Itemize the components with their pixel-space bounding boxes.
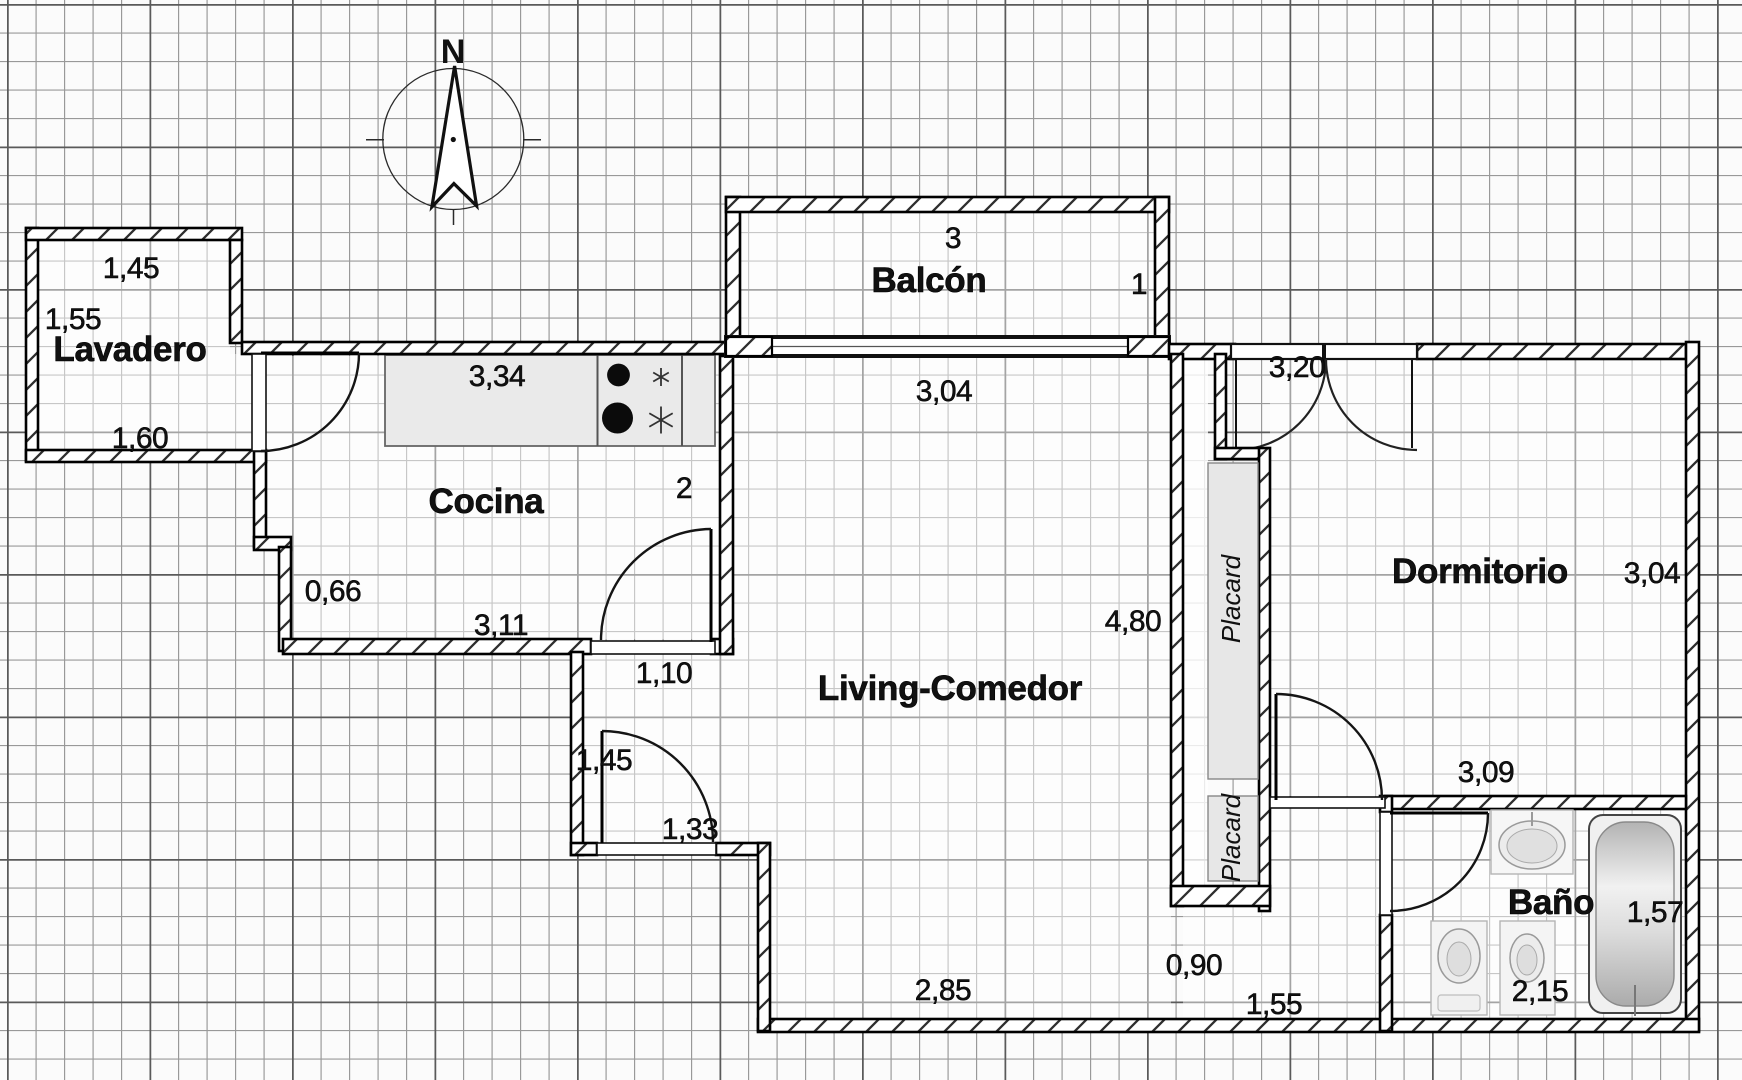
- svg-text:1,45: 1,45: [103, 252, 159, 285]
- svg-text:Placard: Placard: [1216, 792, 1246, 882]
- svg-text:3,20: 3,20: [1269, 351, 1325, 384]
- svg-text:2,85: 2,85: [915, 974, 971, 1007]
- svg-text:3: 3: [945, 222, 961, 255]
- svg-text:N: N: [441, 33, 466, 71]
- svg-text:3,09: 3,09: [1458, 756, 1514, 789]
- svg-text:1,33: 1,33: [662, 813, 718, 846]
- svg-text:1,45: 1,45: [576, 744, 632, 777]
- svg-text:Living-Comedor: Living-Comedor: [818, 669, 1083, 708]
- svg-text:0,90: 0,90: [1166, 949, 1222, 982]
- svg-text:1,55: 1,55: [45, 303, 101, 336]
- svg-text:1,57: 1,57: [1627, 896, 1683, 929]
- svg-text:3,04: 3,04: [916, 375, 972, 408]
- svg-text:Cocina: Cocina: [429, 482, 545, 521]
- svg-text:1,10: 1,10: [636, 657, 692, 690]
- svg-text:1: 1: [1131, 268, 1147, 301]
- svg-text:Dormitorio: Dormitorio: [1392, 552, 1568, 591]
- svg-text:1,60: 1,60: [112, 422, 168, 455]
- svg-text:0,66: 0,66: [305, 575, 361, 608]
- svg-text:4,80: 4,80: [1105, 605, 1161, 638]
- svg-text:1,55: 1,55: [1246, 988, 1302, 1021]
- svg-text:Balcón: Balcón: [872, 261, 987, 300]
- svg-text:2,15: 2,15: [1512, 975, 1568, 1008]
- svg-text:2: 2: [676, 472, 692, 505]
- svg-text:Placard: Placard: [1216, 553, 1246, 643]
- svg-text:Baño: Baño: [1508, 883, 1594, 922]
- svg-text:3,04: 3,04: [1624, 557, 1680, 590]
- svg-text:3,11: 3,11: [474, 609, 528, 642]
- svg-text:3,34: 3,34: [469, 360, 525, 393]
